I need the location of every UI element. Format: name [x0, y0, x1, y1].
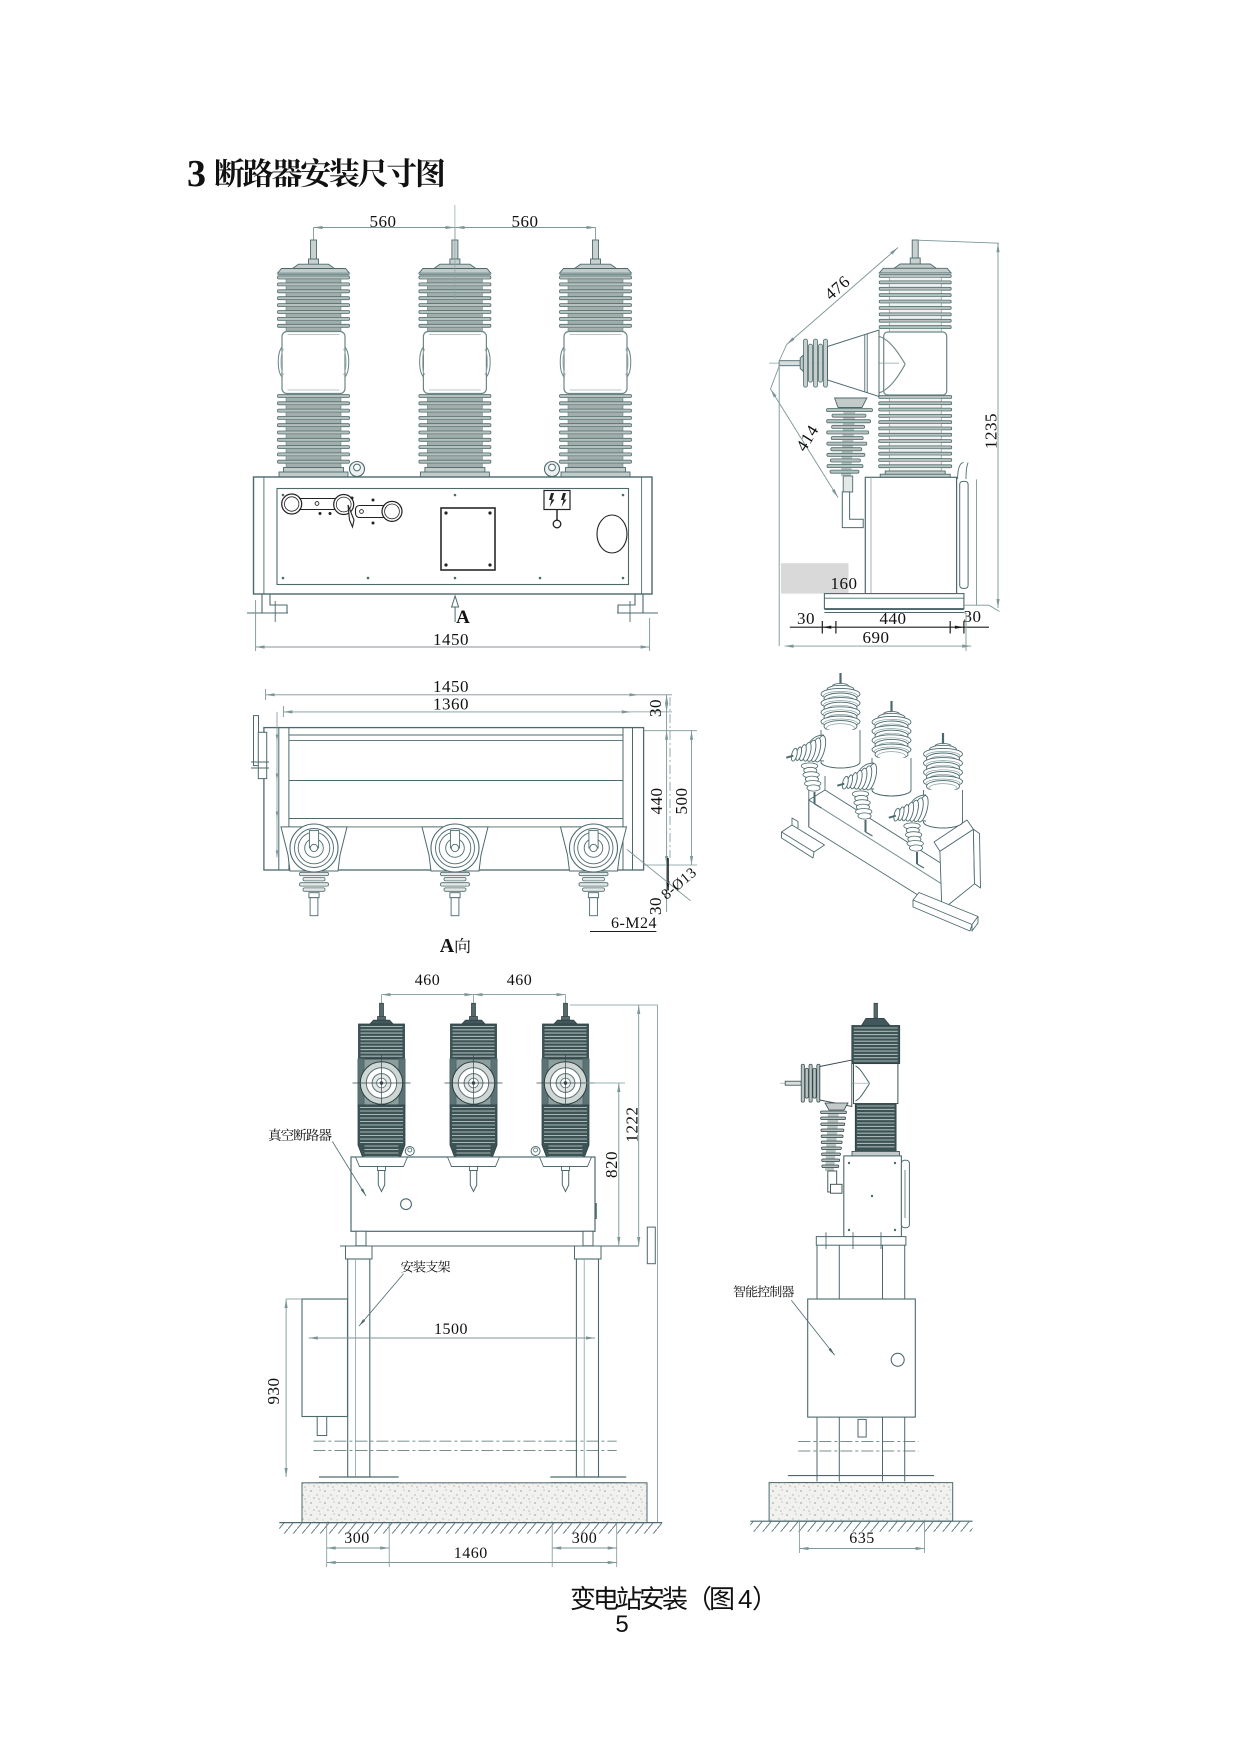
svg-text:30: 30: [646, 897, 665, 915]
svg-text:460: 460: [507, 972, 533, 989]
svg-text:300: 300: [572, 1530, 598, 1547]
svg-text:1460: 1460: [454, 1545, 488, 1562]
svg-text:635: 635: [849, 1530, 875, 1547]
svg-text:560: 560: [512, 212, 539, 231]
svg-text:160: 160: [831, 574, 858, 593]
svg-text:440: 440: [880, 609, 907, 628]
svg-text:30: 30: [646, 699, 665, 717]
svg-text:560: 560: [370, 212, 397, 231]
svg-text:1450: 1450: [433, 677, 469, 696]
svg-text:A: A: [440, 935, 455, 957]
svg-text:500: 500: [672, 788, 691, 815]
svg-text:4: 4: [738, 1584, 752, 1614]
svg-text:300: 300: [344, 1530, 370, 1547]
svg-text:A: A: [456, 607, 470, 628]
svg-text:6-M24: 6-M24: [611, 915, 657, 932]
svg-text:3: 3: [187, 153, 206, 195]
svg-text:1450: 1450: [433, 630, 469, 649]
svg-text:930: 930: [264, 1378, 283, 1405]
svg-text:440: 440: [647, 788, 666, 815]
svg-text:5: 5: [615, 1611, 628, 1638]
svg-text:460: 460: [415, 972, 441, 989]
svg-text:1500: 1500: [434, 1321, 468, 1338]
svg-text:1222: 1222: [623, 1107, 642, 1143]
svg-text:690: 690: [863, 628, 890, 647]
svg-text:1360: 1360: [433, 695, 469, 714]
svg-text:1235: 1235: [982, 413, 1001, 449]
svg-text:30: 30: [797, 609, 815, 628]
svg-text:820: 820: [602, 1151, 621, 1178]
